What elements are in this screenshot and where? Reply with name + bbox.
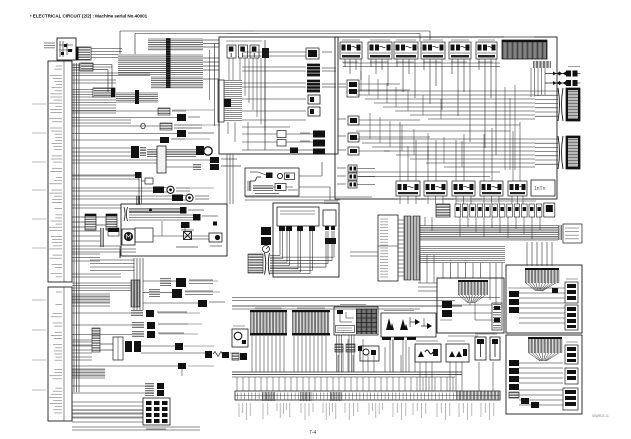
- svg-text:54W9D3-11: 54W9D3-11: [592, 414, 609, 418]
- svg-text:1nTn: 1nTn: [534, 186, 546, 192]
- svg-text:• ELECTRICAL CIRCUIT (2/2) : M: • ELECTRICAL CIRCUIT (2/2) : Machine ser…: [30, 14, 148, 19]
- svg-text:7-4: 7-4: [309, 430, 316, 436]
